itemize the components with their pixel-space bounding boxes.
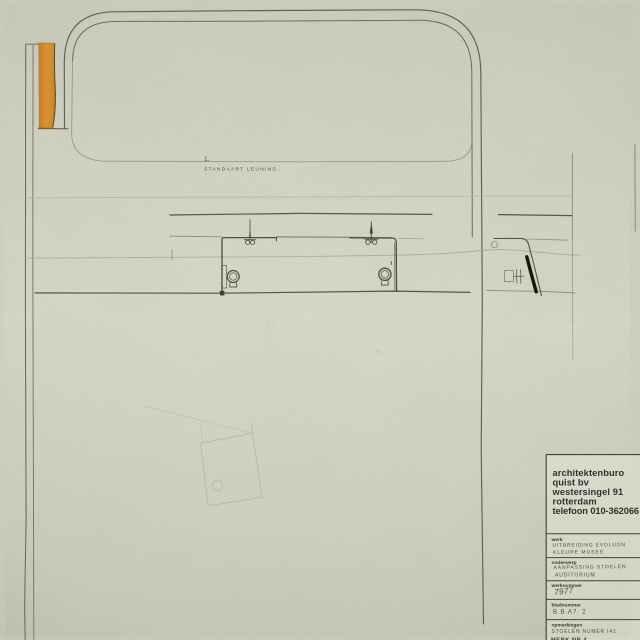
svg-text:KLEURE MUSEE: KLEURE MUSEE (553, 549, 604, 555)
svg-text:B.B.A7. 2: B.B.A7. 2 (553, 609, 586, 616)
svg-text:westersingel 91: westersingel 91 (552, 487, 624, 497)
svg-text:telefoon 010-362066: telefoon 010-362066 (553, 506, 639, 516)
svg-text:bladnummer: bladnummer (552, 602, 581, 608)
svg-text:architektenburo: architektenburo (553, 468, 625, 478)
svg-text:AANPASSING STOELEN: AANPASSING STOELEN (553, 564, 626, 571)
svg-text:AUDITORIUM: AUDITORIUM (555, 573, 596, 579)
svg-text:1.: 1. (204, 156, 210, 163)
svg-text:opmerkingen: opmerkingen (552, 623, 583, 629)
svg-text:.: . (118, 378, 119, 384)
svg-text:STANDAART LEUNING,: STANDAART LEUNING, (204, 167, 280, 173)
svg-text:STOELEN NUMER I41: STOELEN NUMER I41 (552, 629, 617, 635)
svg-text:quist bv: quist bv (553, 478, 590, 488)
svg-text:7977: 7977 (554, 585, 574, 597)
svg-text:55: 55 (375, 350, 381, 356)
svg-text:rotterdam: rotterdam (553, 497, 597, 507)
svg-text:UITBREIDING EVOLUON: UITBREIDING EVOLUON (552, 542, 625, 549)
